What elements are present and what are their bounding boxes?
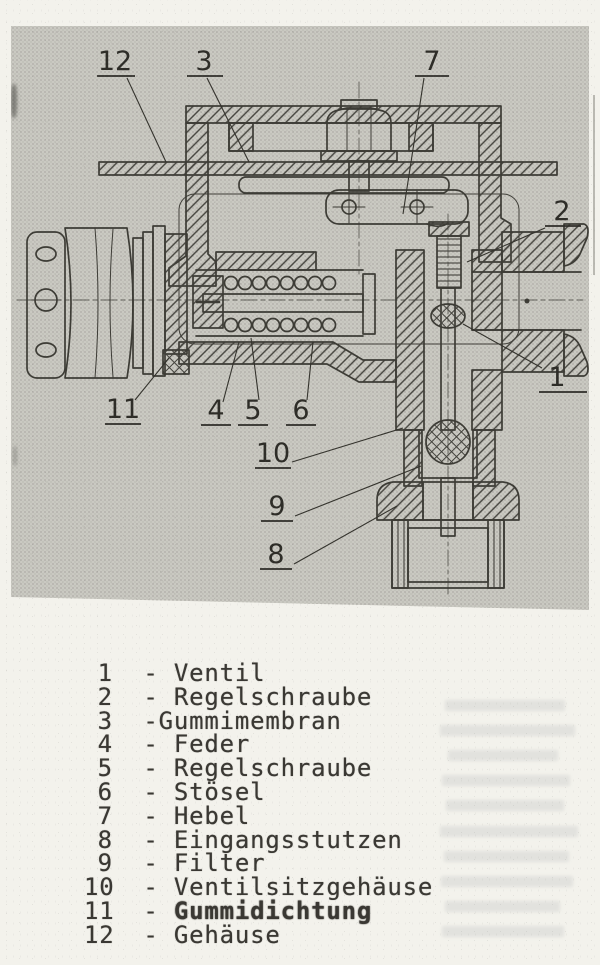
callout-leader-line — [127, 78, 166, 162]
scan-smudge — [11, 84, 17, 118]
callout-leader-line — [292, 428, 403, 462]
valve-seat-housing — [404, 430, 422, 486]
callout-4: 4 — [207, 395, 224, 426]
scanned-manual-page: { "page": { "background": "#f3f2ec", "ph… — [0, 0, 600, 965]
valve-block — [396, 222, 502, 486]
callout-5: 5 — [244, 395, 261, 426]
callout-1: 1 — [548, 362, 565, 393]
pusher-rod — [203, 294, 363, 312]
callout-2: 2 — [553, 196, 570, 227]
callout-6: 6 — [292, 395, 309, 426]
callout-12: 12 — [98, 46, 132, 77]
callout-7: 7 — [423, 46, 440, 77]
outlet-fitting — [27, 226, 189, 378]
part-number: 7 — [84, 805, 113, 829]
legend-separator: - — [113, 921, 174, 949]
housing-cover — [169, 106, 519, 382]
spring-assembly — [193, 252, 375, 336]
diagram-photo: 123721114561098 — [11, 26, 589, 610]
callout-10: 10 — [256, 438, 290, 469]
regulator-cross-section-figure: 123721114561098 — [11, 26, 589, 602]
scan-artifact-line — [593, 95, 595, 275]
rubber-seal — [163, 350, 189, 374]
filter-element — [426, 420, 470, 464]
callout-3: 3 — [195, 46, 212, 77]
lever — [326, 190, 468, 226]
spring-coils — [225, 277, 336, 332]
regulating-screw — [429, 222, 469, 236]
valve-disc — [431, 304, 465, 328]
part-name: Gehäuse — [174, 921, 281, 949]
callout-leader-line — [294, 506, 397, 564]
callout-8: 8 — [267, 539, 284, 570]
scan-smudge — [13, 446, 17, 466]
callout-11: 11 — [106, 394, 140, 425]
callout-9: 9 — [268, 491, 285, 522]
part-number: 12 — [84, 924, 113, 948]
